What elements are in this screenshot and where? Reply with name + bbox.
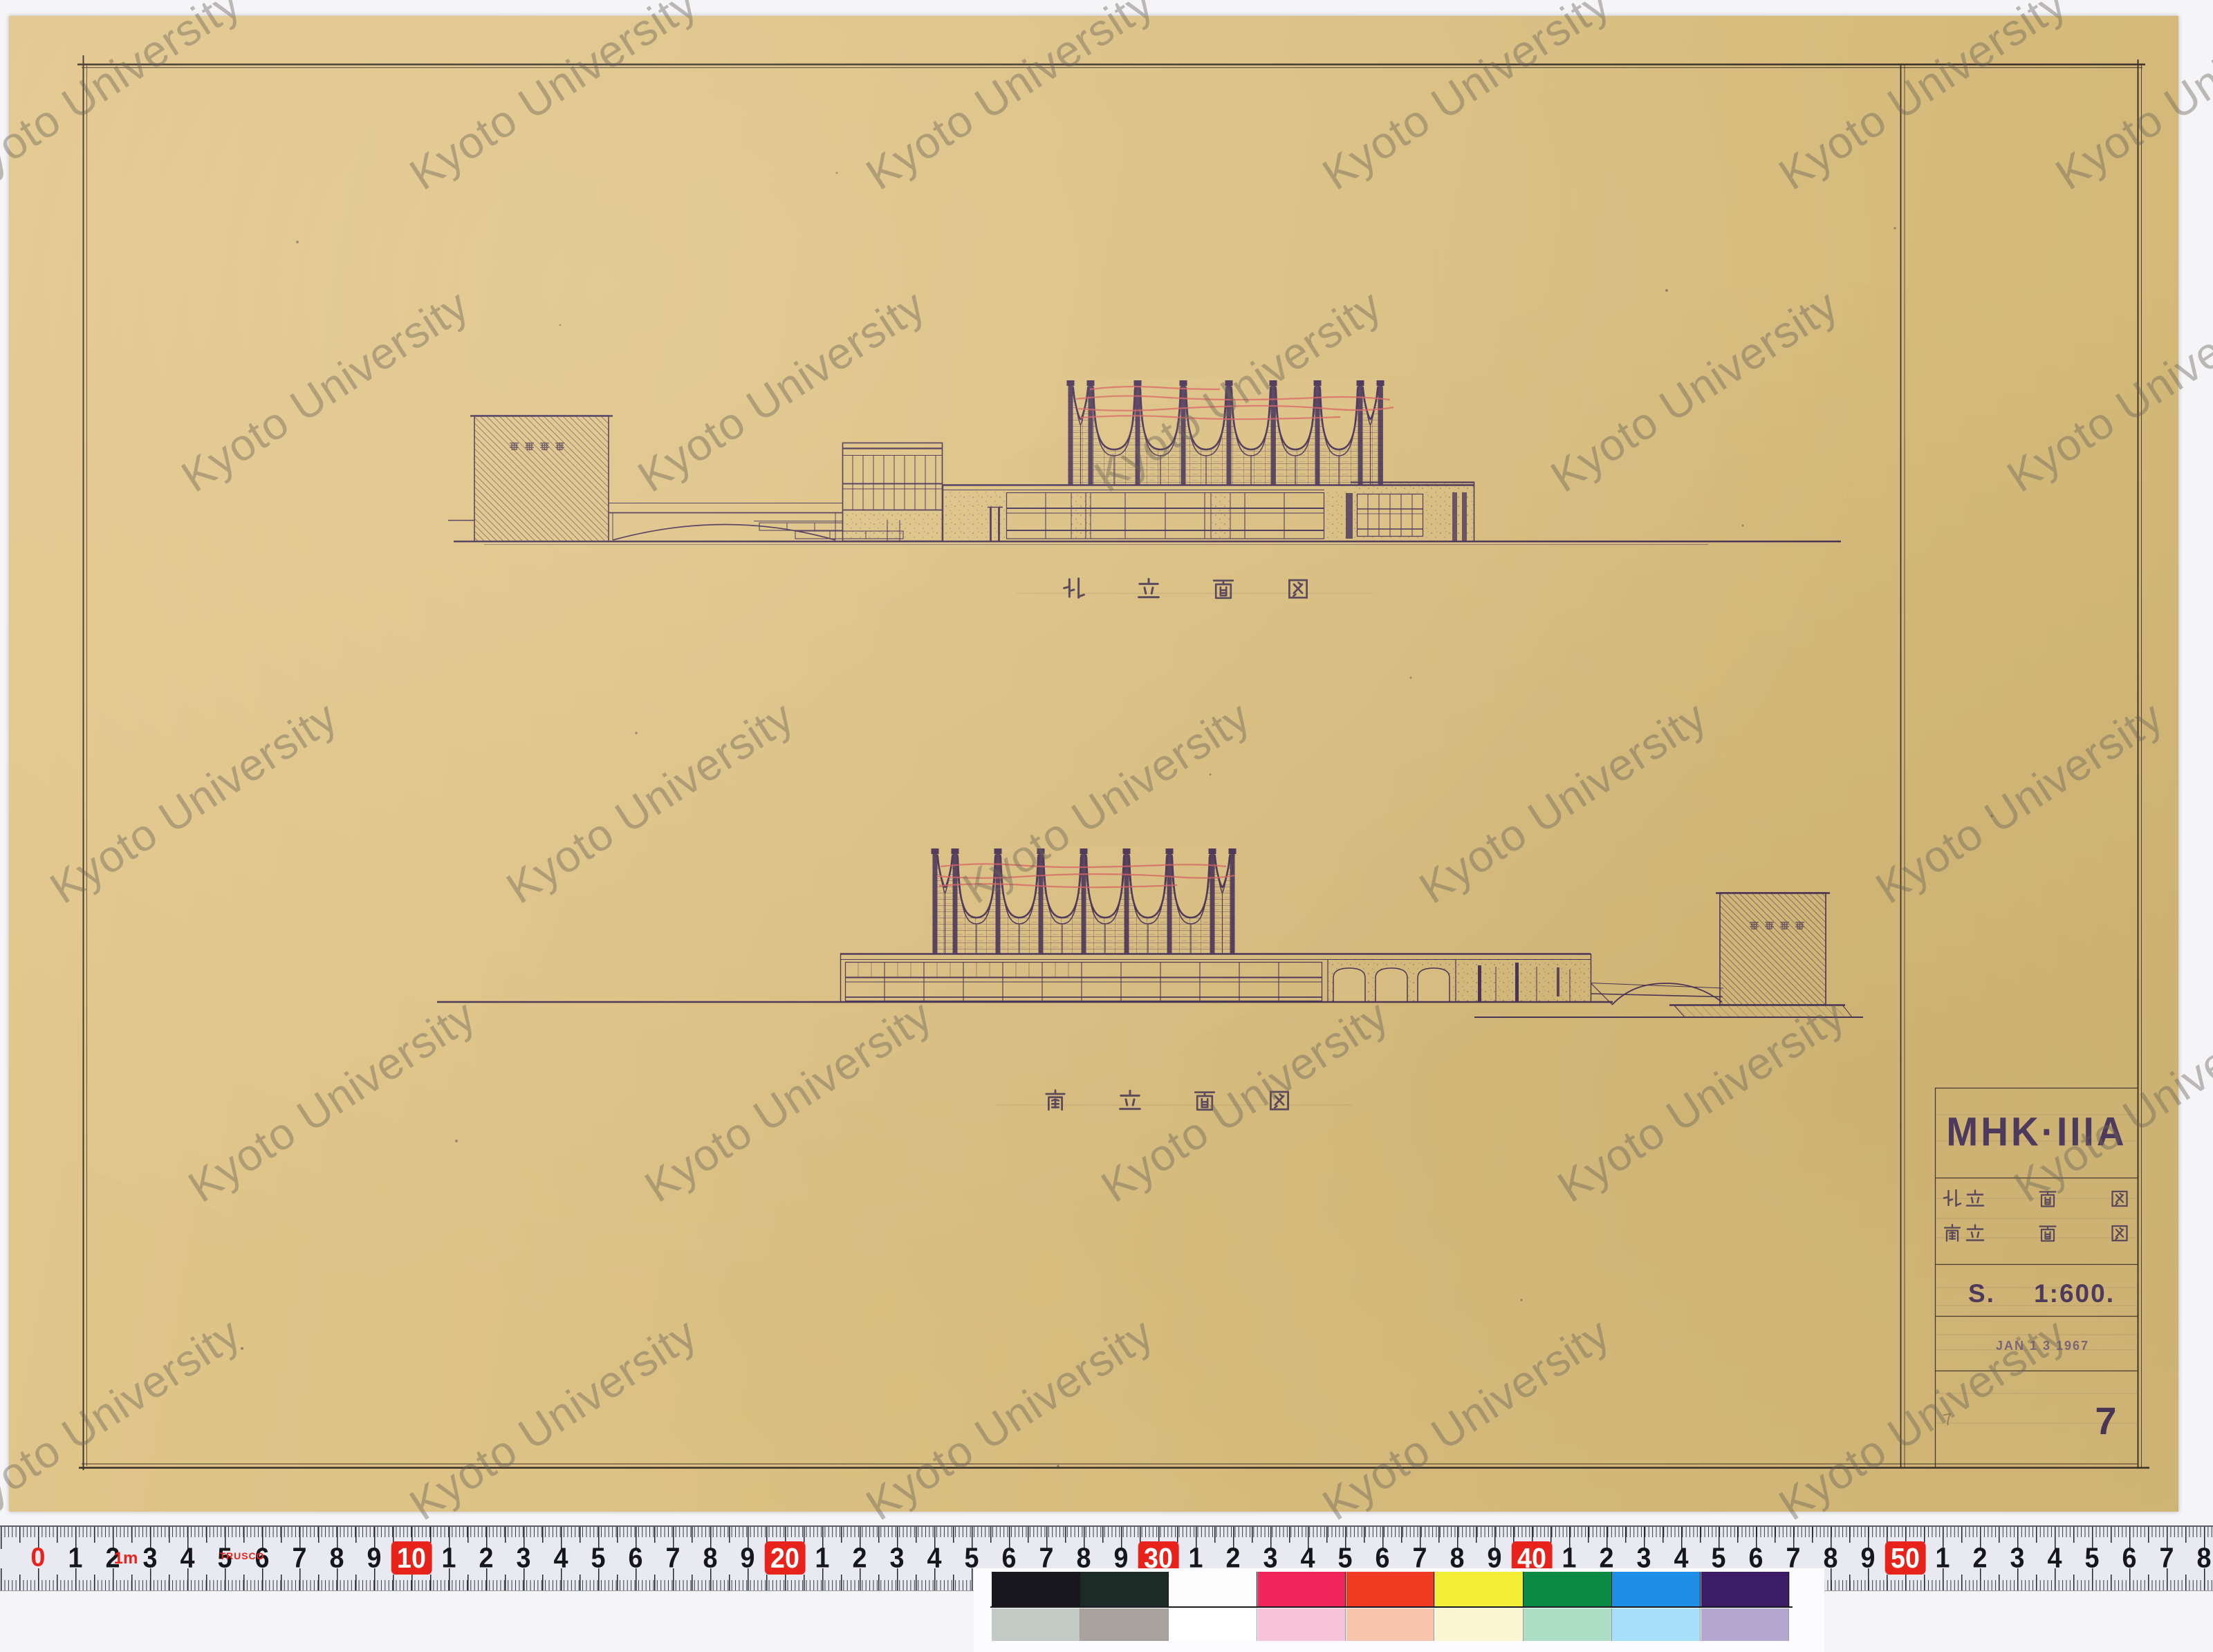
ruler-number: 3 [890,1542,905,1575]
ruler-number: 3 [2010,1542,2025,1575]
kanji-drawing-icon [2109,1223,2130,1243]
ruler-number: 3 [517,1542,531,1575]
kanji-north-icon [1942,1188,1963,1209]
ruler-number: 9 [1861,1542,1876,1575]
ruler-number: 5 [591,1542,606,1575]
scale-value: 1:600. [2034,1279,2115,1308]
scanned-drawing-page: MHK·IIIA S. 1:600. JAN 1 3 1967 7 7 Kyot… [0,0,2213,1652]
color-swatch [992,1608,1080,1641]
sheet-number: 7 [2082,1398,2130,1443]
ruler-number: 7 [2160,1542,2174,1575]
kanji-drawing-icon [1286,576,1311,601]
scale-stamp: S. 1:600. [1968,1279,2115,1308]
pencil-guide-lines [996,593,2137,1423]
color-swatch [1080,1608,1168,1641]
color-swatch [1435,1572,1523,1606]
color-swatch [1701,1572,1789,1606]
color-swatch [1080,1572,1168,1606]
kanji-stand-icon [1136,576,1161,601]
kanji-drawing-icon [2109,1188,2130,1209]
ruler-number: 9 [741,1542,755,1575]
kanji-stand-icon [1118,1088,1142,1113]
existing-building-stamp [1748,920,1806,931]
ruler-number: 4 [180,1542,195,1575]
color-swatch [1524,1608,1611,1641]
ruler-number: 8 [2197,1542,2212,1575]
color-swatch [992,1572,1080,1606]
ruler-number: 10 [391,1541,432,1575]
kanji-face-icon [1211,576,1236,601]
ruler-number: 1 [815,1542,830,1575]
color-swatch [1612,1572,1700,1606]
title-row-south [1942,1223,2130,1243]
color-swatch [1258,1572,1346,1606]
color-swatch [1258,1608,1346,1641]
kanji-south-icon [1043,1088,1068,1113]
kanji-north-icon [1062,576,1086,601]
ruler-number: 2 [1973,1542,1988,1575]
color-swatch [1524,1572,1611,1606]
ruler-number: 4 [554,1542,568,1575]
color-swatch [1169,1572,1257,1606]
ruler-number: 1 [442,1542,456,1575]
ruler-number: 4 [2048,1542,2062,1575]
card-row-divider [990,1606,1793,1608]
color-swatch [1701,1608,1789,1641]
ruler-brand-logo: TRUSCO [219,1550,264,1561]
kanji-face-icon [2037,1223,2058,1243]
ruler-number: 50 [1885,1541,1926,1575]
ruler-zero-label: 0 [30,1543,45,1573]
color-swatch [1169,1608,1257,1641]
kanji-south-icon [1942,1223,1963,1243]
ruler-number: 6 [2122,1542,2137,1575]
ruler-number: 6 [629,1542,643,1575]
south-elevation [437,846,1863,1017]
kanji-stand-icon [1965,1188,1985,1209]
color-swatch [1346,1608,1434,1641]
ruler-meter-label: 1m [114,1549,138,1568]
ruler-number: 4 [927,1542,942,1575]
scale-label: S. [1968,1279,1995,1308]
ruler-number: 7 [666,1542,680,1575]
ruler-number: 8 [1824,1542,1838,1575]
sheet-frame [77,55,2149,1470]
ruler-number: 8 [703,1542,718,1575]
ruler-number: 8 [330,1542,344,1575]
color-calibration-card [974,1568,1824,1652]
ruler-number: 3 [143,1542,158,1575]
existing-building-stamp [508,440,566,452]
ruler-number: 7 [293,1542,307,1575]
ruler-number: 1 [1936,1542,1950,1575]
north-elevation-caption [1062,576,1311,601]
kanji-stand-icon [1965,1223,1985,1243]
ruler-number: 5 [2085,1542,2100,1575]
ruler-number: 1 [68,1542,83,1575]
ruler-number: 20 [765,1541,806,1575]
color-swatch [1346,1572,1434,1606]
color-swatch [1435,1608,1523,1641]
ruler-number: 2 [479,1542,494,1575]
color-swatch [1612,1608,1700,1641]
ruler-number: 2 [853,1542,867,1575]
ruler-number: 9 [367,1542,382,1575]
